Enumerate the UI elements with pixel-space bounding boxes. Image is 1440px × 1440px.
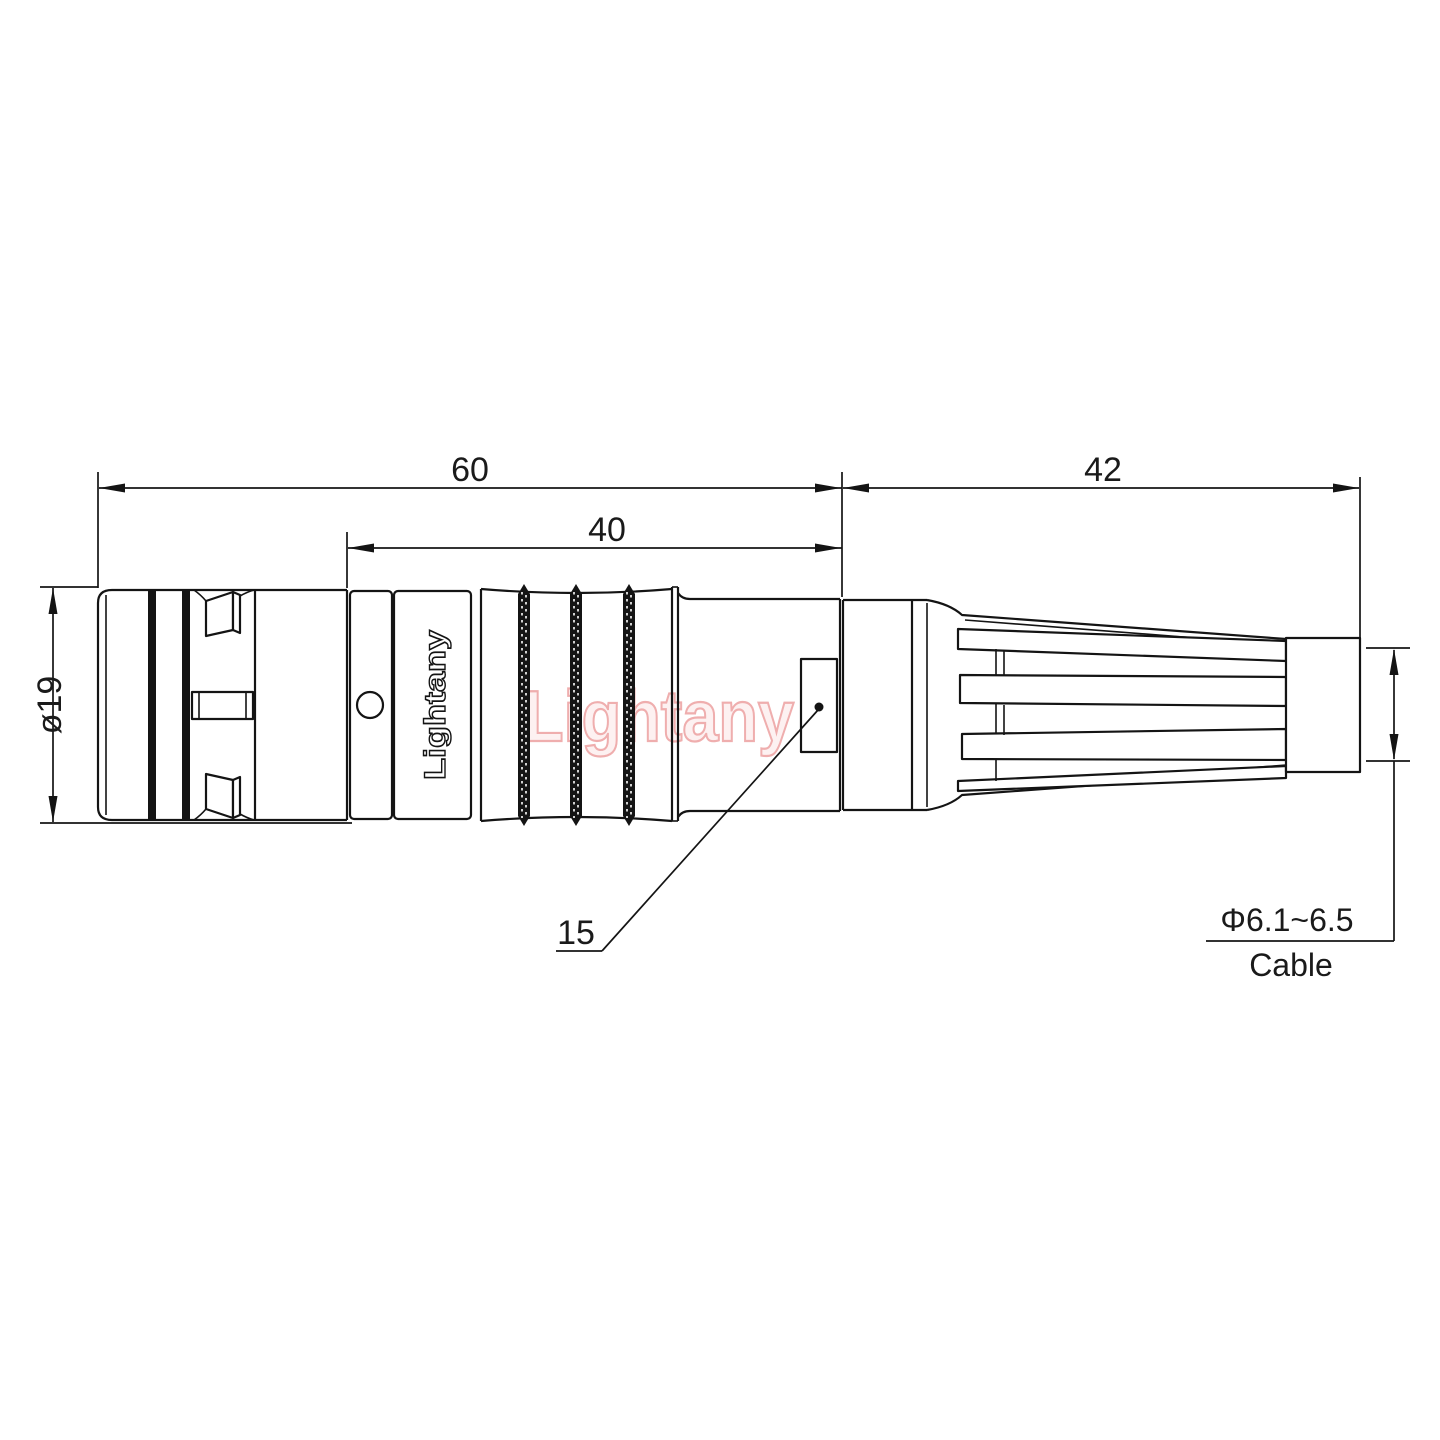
cable-caption-label: Cable [1249,947,1333,983]
dim-boot-length: 42 [842,451,1360,638]
dim-60-label: 60 [451,451,489,489]
dim-dia19-label: ø19 [31,676,69,735]
collar-ring [350,591,392,819]
watermark-text: Lightany [524,677,794,757]
boot-tip-sleeve [1286,638,1360,772]
knurl-band-1 [518,584,530,826]
leader-15-label: 15 [557,914,595,952]
top-key [194,590,254,636]
bottom-key [194,774,254,820]
dim-42-label: 42 [1084,451,1122,489]
leader-target-dot [815,703,824,712]
brand-band: Lightany [394,591,471,819]
boot-fins [958,629,1286,791]
connector-technical-drawing: Lightany [0,0,1440,1440]
drawing-canvas: Lightany [0,0,1440,1440]
knurl-band-3 [623,584,635,826]
dim-overall-length: 60 [98,451,842,588]
latch-window [801,659,837,752]
side-slot [192,692,253,719]
dim-rear-length: 40 [347,511,842,588]
dim-40-label: 40 [588,511,626,549]
brand-engraving-text: Lightany [419,630,452,780]
front-shell [98,590,347,820]
knurl-band-2 [570,584,582,826]
strain-relief-boot [843,600,1360,810]
cable-diameter-label: Φ6.1~6.5 [1220,902,1353,938]
